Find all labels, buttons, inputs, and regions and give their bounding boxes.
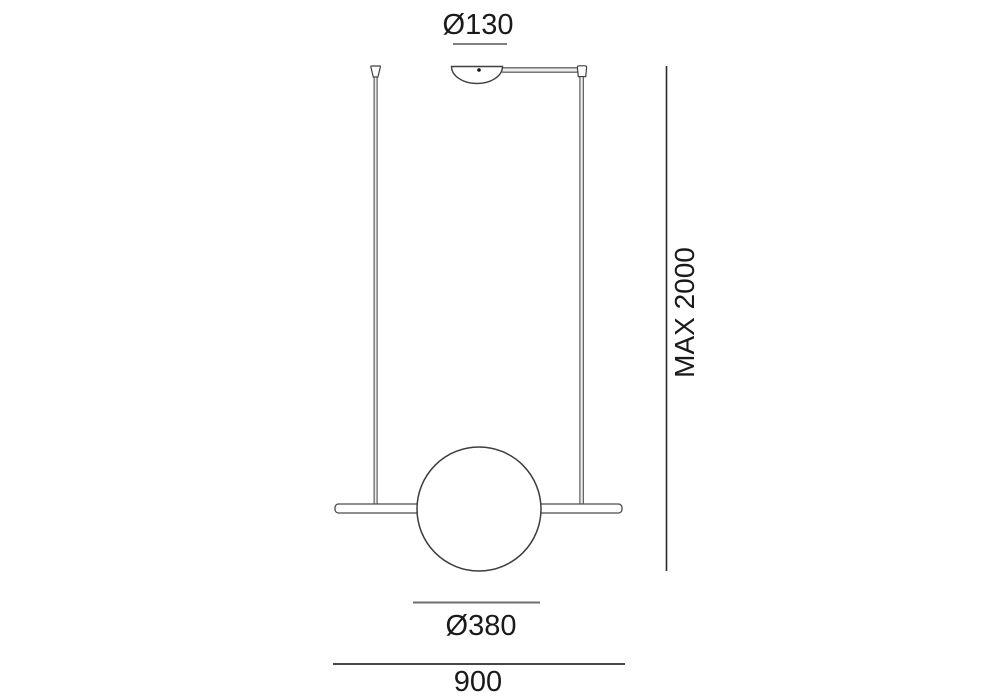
left-suspension-wire — [374, 77, 377, 505]
left-wire-connector — [371, 66, 381, 77]
overall-width-label: 900 — [378, 668, 578, 697]
sphere-diameter-label: Ø380 — [381, 612, 581, 641]
lamp-dimension-diagram: Ø130 MAX 2000 Ø380 900 — [0, 0, 1000, 700]
right-wire-connector — [577, 66, 586, 77]
max-height-label: MAX 2000 — [670, 232, 699, 393]
canopy-center-dot — [477, 68, 481, 72]
lamp-technical-drawing — [0, 0, 1000, 700]
horizontal-arm — [501, 68, 579, 72]
ceiling-canopy — [452, 67, 503, 84]
canopy-diameter-label: Ø130 — [378, 11, 578, 40]
glass-sphere — [417, 447, 541, 571]
right-suspension-wire — [580, 77, 583, 505]
